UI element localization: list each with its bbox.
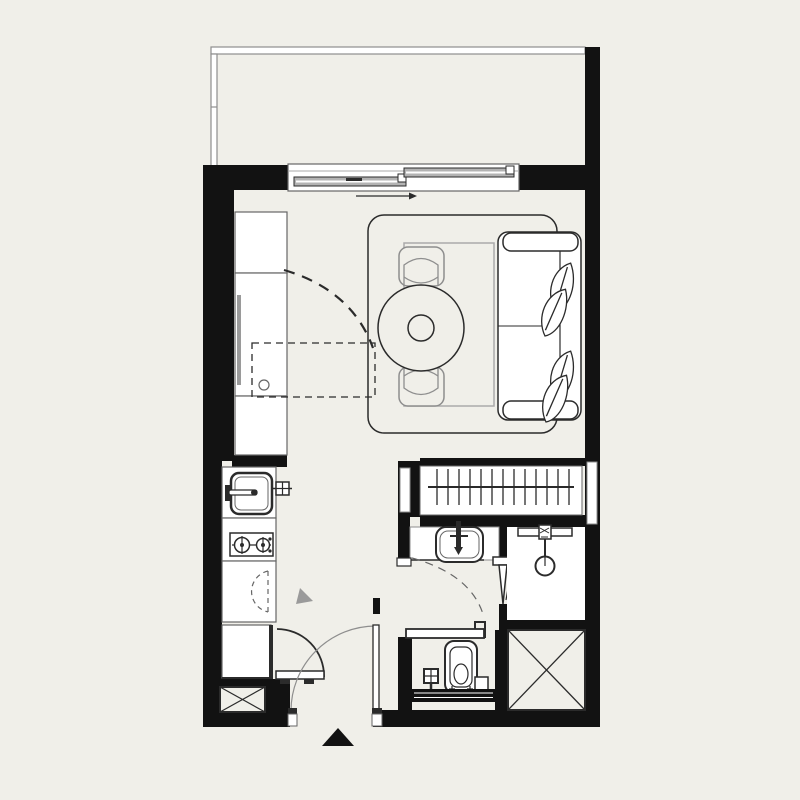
service-shaft-large xyxy=(508,630,585,710)
floor-plan xyxy=(0,0,800,800)
entry-door-leaf xyxy=(373,625,379,711)
chair-bottom-frame xyxy=(399,367,444,406)
refrigerator xyxy=(235,273,287,396)
wall-shower-left-upper xyxy=(499,527,507,558)
chair-top-frame xyxy=(399,247,444,286)
balcony-railing-left xyxy=(211,54,217,166)
balcony-railing-top xyxy=(211,47,585,54)
wall-kitchen-stub xyxy=(232,455,287,467)
wall-top-left xyxy=(203,165,291,190)
wall-corridor-stub xyxy=(373,598,380,614)
cooktop-knob-1 xyxy=(268,537,271,540)
closet-door-foot-2 xyxy=(304,679,314,684)
bathroom-door-jamb xyxy=(397,558,411,566)
base-cabinet xyxy=(235,396,287,455)
entry-jamb-right-cap xyxy=(372,708,382,714)
wall-bottom-right xyxy=(373,710,600,727)
entry-jamb-left-cap xyxy=(288,708,297,714)
sofa-armrest-top xyxy=(503,233,578,251)
towel-shelf xyxy=(406,629,484,638)
hall-wardrobe xyxy=(420,466,582,515)
sofa xyxy=(498,232,584,425)
panel-meeting-tick xyxy=(346,178,362,181)
wardrobe-pillar-slot xyxy=(400,468,410,512)
entry-jamb-left xyxy=(288,714,297,726)
wall-wc-left xyxy=(398,637,412,712)
tall-cabinet xyxy=(235,212,287,273)
wall-wardrobe-top xyxy=(420,458,585,466)
wall-vent-slot xyxy=(587,462,597,524)
cooktop-knob-2 xyxy=(268,549,271,552)
two-burner-cooktop xyxy=(230,533,273,556)
faucet-knob xyxy=(251,490,257,496)
wall-shower-bottom xyxy=(507,620,585,630)
sliding-panel-right-handle xyxy=(506,166,514,174)
wall-top-right xyxy=(516,165,585,190)
service-shaft-small xyxy=(220,687,265,712)
burner-left-center xyxy=(240,543,244,547)
wall-vanity-left xyxy=(398,517,410,560)
dining-chair-bottom xyxy=(399,367,444,406)
wall-wardrobe-bottom xyxy=(420,515,585,527)
wash-basin xyxy=(436,521,483,562)
round-table xyxy=(378,285,464,371)
wc-small-box xyxy=(475,677,488,690)
lower-cabinet xyxy=(222,625,271,678)
refrigerator-handle xyxy=(237,295,241,385)
entry-jamb-right xyxy=(372,714,382,726)
wall-left-lower xyxy=(203,460,222,712)
closet-door-foot-1 xyxy=(280,679,290,684)
refrigerator-knob xyxy=(259,380,269,390)
wall-shower-left-lower xyxy=(499,604,507,632)
lower-cabinet-edge xyxy=(269,625,273,678)
wall-right-column xyxy=(585,47,600,727)
threshold-grate xyxy=(412,689,495,702)
wall-left-upper xyxy=(203,165,234,461)
basin-faucet xyxy=(456,521,461,547)
shower xyxy=(507,525,585,620)
sofa-armrest-bottom xyxy=(503,401,578,419)
burner-right-center xyxy=(261,543,265,547)
dining-chair-top xyxy=(399,247,444,286)
